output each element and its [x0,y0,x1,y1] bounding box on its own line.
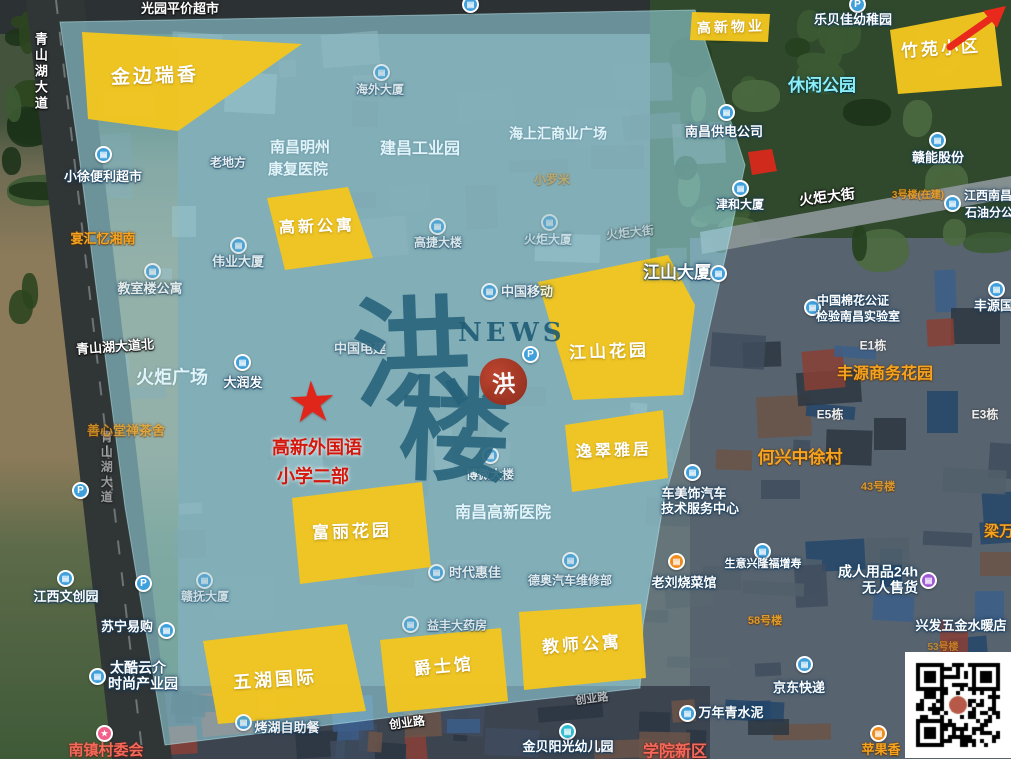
map-label: 苹果香 [861,743,900,757]
region-label: 逸翠雅居 [576,442,653,461]
map-label: 伟业大厦 [212,255,264,269]
poi-icon: ▤ [235,714,252,731]
map-label: 梁万 [984,524,1011,540]
map-label: 南昌高新医院 [455,506,551,523]
restaurant-icon: ▤ [870,725,887,742]
parking-icon: P [135,575,152,592]
map-label: 青山湖大道 [100,431,113,506]
poi-icon: ▤ [158,622,175,639]
poi-icon: ▤ [482,447,499,464]
poi-icon: ▤ [541,214,558,231]
shop-icon: ▤ [920,572,937,589]
map-label: 小徐便利超市 [64,170,142,184]
poi-icon: ▤ [718,104,735,121]
car-service-icon: ▤ [684,464,701,481]
map-label: 中国棉花公证 [817,295,889,308]
restaurant-icon: ▤ [668,553,685,570]
map-label: 德奥汽车维修部 [528,575,612,588]
map-label: 中国移动 [501,285,553,299]
map-label: 车美饰汽车 [661,487,726,501]
map-label: 万年青水泥 [698,706,763,720]
poi-icon: ▤ [144,263,161,280]
qr-code [905,652,1011,758]
map-label: 建昌工业园 [380,142,460,159]
map-image: ▤▤▤P▤▤▤▤▤▤PP▤▤▤▤▤▤▤▤▤▤▤▤▤▤▤▤▤▤▤▤★▤▤P▤▤ 光… [0,0,1011,759]
region-label: 金边瑞香 [111,66,200,89]
map-label: 石油分公司 [965,207,1011,220]
poi-icon: ▤ [562,552,579,569]
poi-icon: ▤ [732,180,749,197]
map-label: 成人用品24h [838,565,918,580]
map-label: 太酷云介 [110,661,166,676]
committee-star-icon: ★ [96,725,113,742]
region-label: 富丽花园 [312,522,393,543]
map-label: 光园平价超市 [141,2,219,16]
map-label: 3号楼(在建) [892,191,944,202]
poi-icon: ▤ [428,564,445,581]
map-label: 何兴中徐村 [758,449,843,467]
map-label: E3栋 [972,409,999,422]
map-label: 南昌供电公司 [685,125,763,139]
map-label: 休闲公园 [788,77,856,95]
map-label: 高捷大楼 [414,237,462,250]
school-star-marker: ★ [285,368,339,437]
delivery-icon: ▤ [796,656,813,673]
map-label: 烤湖自助餐 [254,721,319,735]
map-label: 海外大厦 [356,84,404,97]
poi-icon: ▤ [95,146,112,163]
map-label: 中国电建 [334,342,386,356]
map-label: 益丰大药房 [427,620,487,633]
map-label: 火炬广场 [136,369,208,388]
map-label: 检验南昌实验室 [816,311,900,324]
map-label: 兴发五金水暖店 [915,619,1006,633]
poi-icon: ▤ [988,281,1005,298]
poi-icon: ▤ [429,218,446,235]
map-label: 金贝阳光幼儿园 [522,740,613,754]
map-label: 宴汇忆湘南 [70,232,135,246]
map-label: 小学二部 [277,468,349,487]
poi-icon: ▤ [373,64,390,81]
map-label: 火炬大厦 [524,234,572,247]
map-label: 赣抚大厦 [181,591,229,604]
poi-icon: ▤ [679,705,696,722]
map-label: 无人售货 [862,581,918,596]
map-label: 大润发 [223,376,262,390]
red-arrow-icon [938,0,1011,52]
map-label: 江西南昌 [964,190,1011,203]
red-building [748,149,777,175]
poi-icon: ▤ [196,572,213,589]
map-label: 京东快递 [773,681,825,695]
map-label: 技术服务中心 [661,502,739,516]
poi-icon: ▤ [481,283,498,300]
map-label: 南镇村委会 [68,743,143,759]
map-label: E5栋 [817,409,844,422]
map-label: 赣能股份 [912,151,964,165]
poi-icon: ▤ [710,265,727,282]
map-label: 海上汇商业广场 [509,127,607,142]
map-label: 丰源国际 [974,299,1011,313]
map-label: 58号楼 [748,616,782,628]
map-label: 时尚产业园 [108,677,178,692]
map-label: 43号楼 [861,482,895,494]
map-label: 老刘烧菜馆 [651,576,716,590]
map-label: 江西文创园 [33,590,98,604]
map-label: 高新外国语 [272,439,362,458]
region-label: 江山花园 [569,342,650,363]
map-label: 时代惠佳 [449,566,501,580]
map-label: 苏宁易购 [101,620,153,634]
poi-icon: ▤ [89,668,106,685]
map-label: 津和大厦 [716,199,764,212]
map-label: 小罗米 [534,174,570,187]
region-label: 高新物业 [697,18,765,35]
poi-icon: ▤ [57,570,74,587]
map-label: 生意兴隆福增寿 [725,559,802,571]
map-label: 丰源商务花园 [837,367,933,384]
map-label: 教室楼公寓 [117,282,182,296]
kindergarten-icon: ▤ [559,723,576,740]
map-label: 善心堂禅茶舍 [87,424,165,438]
map-label: 乐贝佳幼稚园 [814,13,892,27]
map-label: 南昌明州 [270,140,330,156]
map-label: 老地方 [210,157,246,170]
parking-icon: P [522,346,539,363]
poi-icon: ▤ [929,132,946,149]
poi-icon: ▤ [944,195,961,212]
map-label: 博微大楼 [466,469,514,482]
poi-icon: ▤ [234,354,251,371]
poi-icon: ▤ [402,616,419,633]
map-label: 学院新区 [643,745,707,759]
poi-icon: ▤ [230,237,247,254]
map-label: E1栋 [860,340,887,353]
parking-icon: P [72,482,89,499]
region-label: 高新公寓 [279,218,356,237]
map-label: 青山湖大道 [33,32,47,112]
map-label: 康复医院 [268,162,328,178]
map-label: 江山大厦 [643,264,711,282]
